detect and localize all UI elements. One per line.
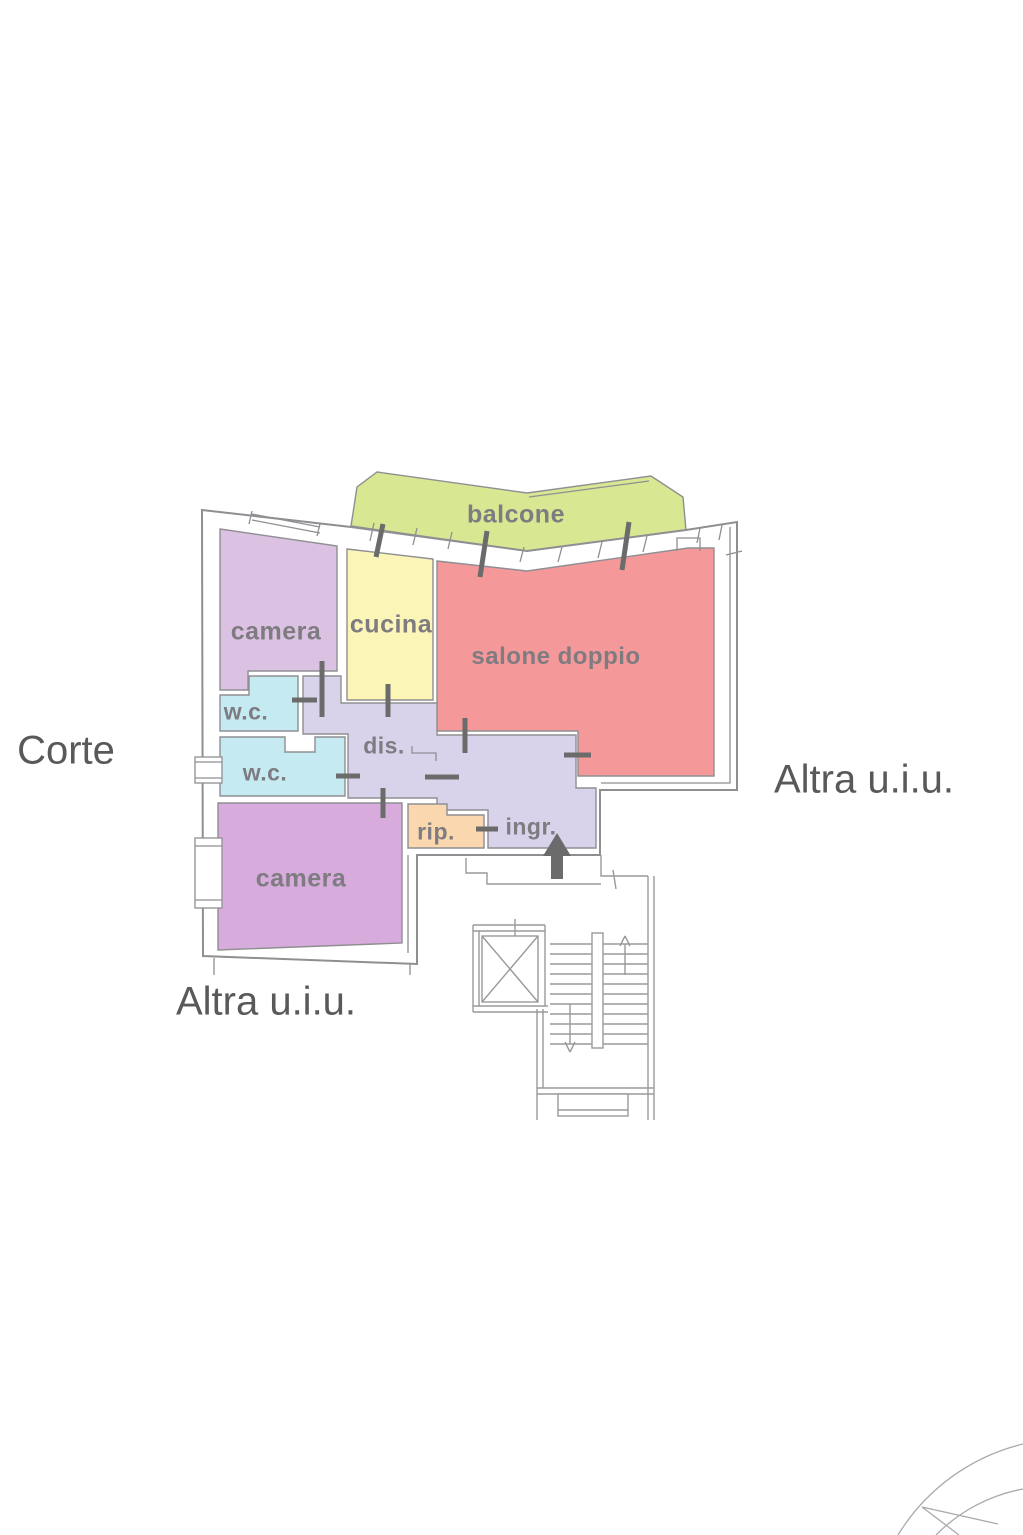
stair-hall-right-wall <box>648 876 654 1120</box>
room-label-disimpegno: dis. <box>363 733 405 760</box>
room-camera-nord <box>220 529 337 690</box>
room-label-camera-nord: camera <box>231 618 322 647</box>
right-wall-tick <box>726 551 742 555</box>
left-wall-window-1 <box>195 757 222 783</box>
outer-arc <box>898 1444 1023 1535</box>
room-label-balcone: balcone <box>467 501 565 530</box>
stair-hall-bottom-wall <box>537 1088 654 1094</box>
room-label-ingresso: ingr. <box>505 814 556 841</box>
room-label-salone-doppio: salone doppio <box>471 643 640 671</box>
stair-threshold <box>558 1094 628 1116</box>
stair-steps-left-flight <box>550 944 592 1044</box>
top-wall-window <box>249 511 320 536</box>
floor-plan: balcone camera cucina salone doppio w.c.… <box>0 0 1023 1535</box>
elevator-enclosure <box>473 919 548 1012</box>
stair-down-arrow-icon <box>565 1004 575 1052</box>
corner-arc-decoration <box>898 1444 1023 1535</box>
room-label-wc-1: w.c. <box>224 699 269 726</box>
room-label-camera-sud: camera <box>256 865 347 894</box>
outside-label-altra-uiu-basso: Altra u.i.u. <box>176 980 356 1025</box>
room-label-wc-2: w.c. <box>243 760 288 787</box>
outside-label-corte: Corte <box>17 729 115 774</box>
elevator-x-mark <box>482 936 538 1002</box>
stair-stringer <box>592 933 603 1048</box>
room-label-cucina: cucina <box>350 611 432 640</box>
stair-hall-left-wall <box>537 1009 543 1120</box>
outside-label-altra-uiu-destra: Altra u.i.u. <box>774 758 954 803</box>
stairwell <box>466 855 654 1120</box>
arc-radials <box>922 1507 998 1535</box>
left-wall-window-2 <box>195 838 222 908</box>
room-label-ripostiglio: rip. <box>417 819 455 846</box>
stair-up-arrow-icon <box>620 936 630 975</box>
